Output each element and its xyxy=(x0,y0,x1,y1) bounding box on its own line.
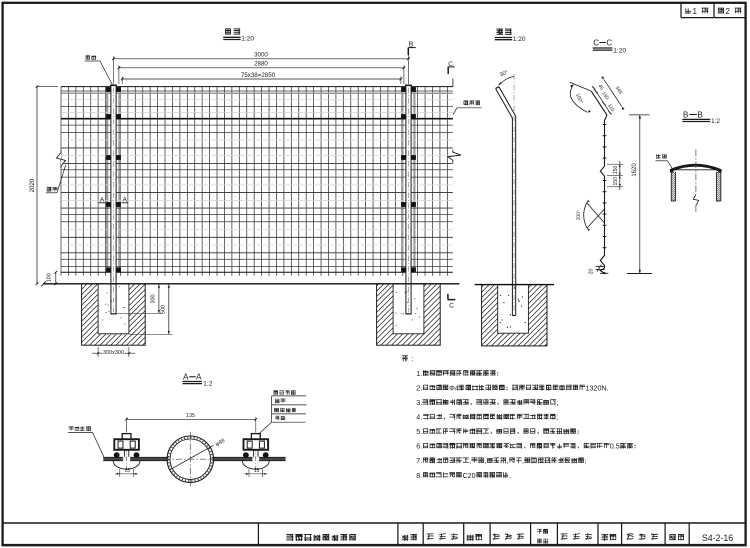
svg-text:1620: 1620 xyxy=(632,163,638,177)
svg-text:7.: 7. xyxy=(416,456,422,465)
svg-text:3.: 3. xyxy=(416,398,422,407)
svg-text:15: 15 xyxy=(125,468,131,474)
svg-text:300: 300 xyxy=(151,294,157,303)
svg-text:;: ; xyxy=(556,398,558,407)
svg-text:;: ; xyxy=(584,456,586,465)
svg-text:1: 1 xyxy=(693,7,698,16)
svg-text:A: A xyxy=(123,196,128,203)
svg-text:A: A xyxy=(100,196,105,203)
svg-text:150: 150 xyxy=(613,166,619,175)
svg-text:100: 100 xyxy=(47,273,53,282)
svg-text:1:2: 1:2 xyxy=(711,118,720,125)
svg-text:8.: 8. xyxy=(416,471,422,480)
svg-text:A: A xyxy=(183,373,189,382)
svg-text:,: , xyxy=(507,456,509,465)
svg-text:135: 135 xyxy=(186,413,195,419)
svg-text:0.5: 0.5 xyxy=(610,442,620,451)
svg-text:1:20: 1:20 xyxy=(241,36,254,43)
svg-text:Φ4: Φ4 xyxy=(449,383,459,392)
svg-text:A: A xyxy=(196,373,202,382)
svg-text:B: B xyxy=(697,110,702,119)
svg-text:;: ; xyxy=(556,413,558,422)
svg-text::: : xyxy=(412,354,414,363)
svg-text:500: 500 xyxy=(161,305,167,314)
svg-text:S4-2-16: S4-2-16 xyxy=(702,533,733,543)
svg-text:1:2: 1:2 xyxy=(203,381,212,388)
svg-text:2.: 2. xyxy=(416,383,422,392)
svg-text:,: , xyxy=(522,456,524,465)
svg-text:C: C xyxy=(606,38,612,47)
svg-text:,: , xyxy=(469,456,471,465)
svg-text:5.: 5. xyxy=(416,427,422,436)
svg-text:C: C xyxy=(449,303,454,310)
svg-text:15: 15 xyxy=(254,468,260,474)
svg-text:C20: C20 xyxy=(462,471,475,480)
svg-text:C: C xyxy=(593,38,599,47)
svg-text:1:20: 1:20 xyxy=(613,48,626,55)
svg-text:,: , xyxy=(485,456,487,465)
svg-text:1320N.: 1320N. xyxy=(586,383,609,392)
svg-text:1:20: 1:20 xyxy=(513,36,526,43)
svg-text:75x38=2850: 75x38=2850 xyxy=(241,72,276,79)
svg-text:1.: 1. xyxy=(416,369,422,378)
svg-text:6.: 6. xyxy=(416,442,422,451)
svg-text:150: 150 xyxy=(613,177,619,186)
svg-text:2: 2 xyxy=(726,7,731,16)
svg-text:300x300: 300x300 xyxy=(103,350,124,356)
svg-text:20: 20 xyxy=(589,269,595,275)
svg-text:2020: 2020 xyxy=(29,178,36,192)
svg-text:3000: 3000 xyxy=(254,52,268,59)
svg-text:4.: 4. xyxy=(416,413,422,422)
svg-text:2880: 2880 xyxy=(254,61,268,68)
svg-text:.: . xyxy=(509,471,511,480)
svg-text:100°: 100° xyxy=(575,210,582,221)
svg-text:B: B xyxy=(683,110,688,119)
